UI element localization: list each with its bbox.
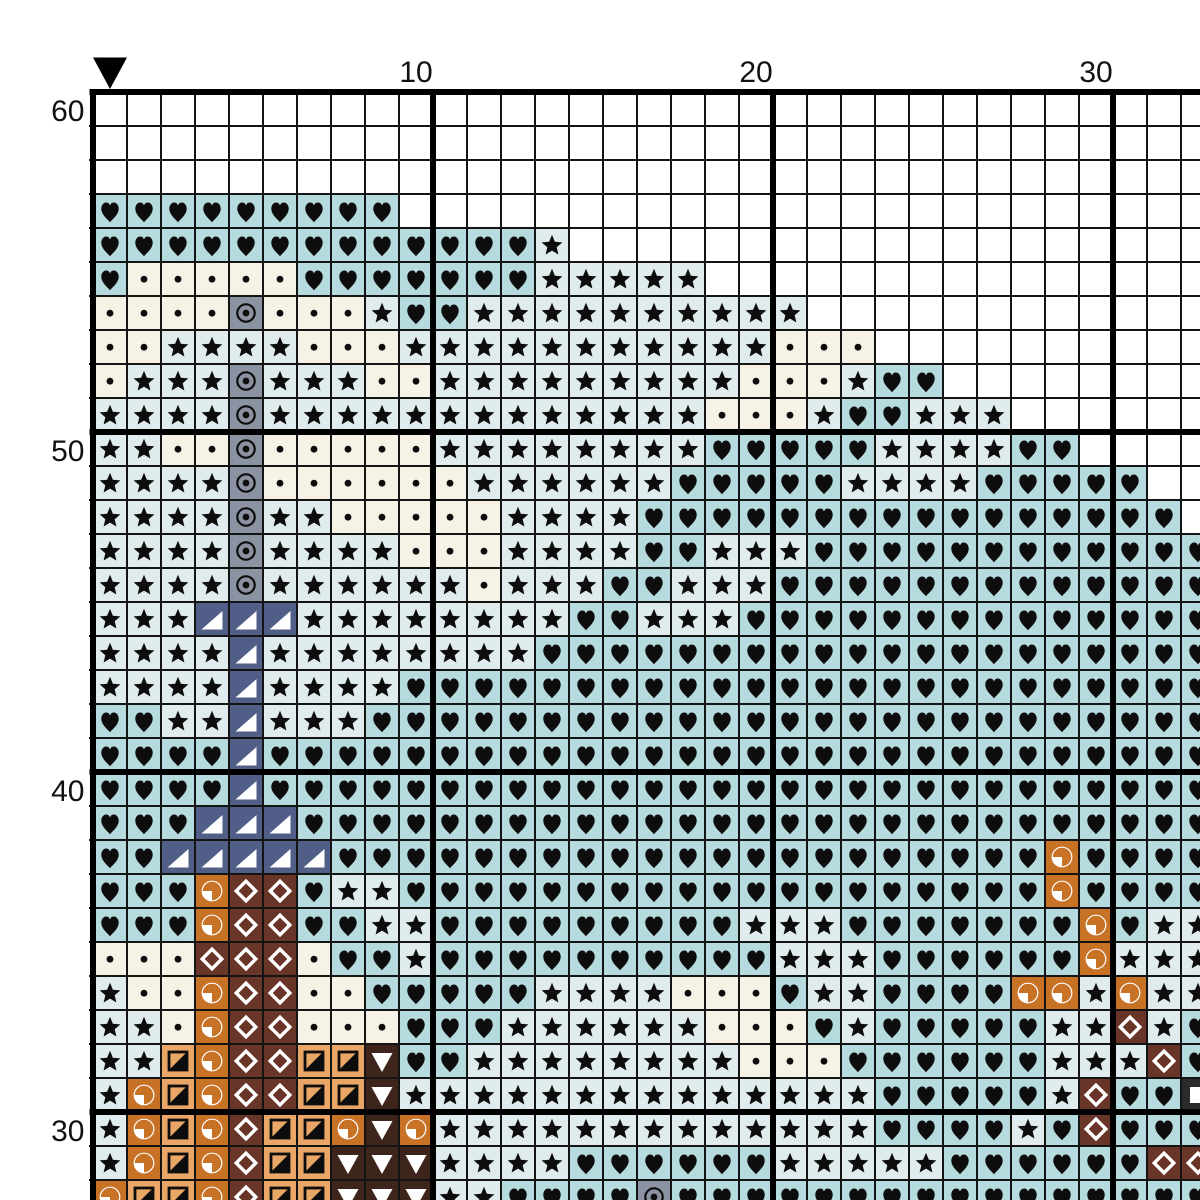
svg-text:30: 30 bbox=[1079, 56, 1112, 89]
svg-text:10: 10 bbox=[399, 56, 432, 89]
svg-text:50: 50 bbox=[51, 435, 84, 468]
svg-text:20: 20 bbox=[739, 56, 772, 89]
svg-text:60: 60 bbox=[51, 95, 84, 128]
svg-text:40: 40 bbox=[51, 775, 84, 808]
svg-text:30: 30 bbox=[51, 1115, 84, 1148]
